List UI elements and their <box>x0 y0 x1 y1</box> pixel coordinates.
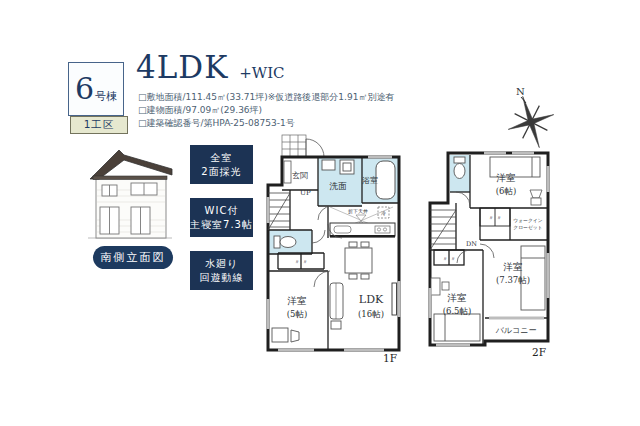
feature-line: 2面採光 <box>201 165 241 179</box>
floor-plan-2f: 〃 〃 〃 〃 ウォークイン クローゼット DN <box>426 148 574 364</box>
room65-name: 洋室 <box>447 292 467 303</box>
feature-box-wic: WIC付 主寝室7.3帖 <box>190 198 253 237</box>
ldk-size: (16帖) <box>358 309 384 319</box>
roof <box>90 150 172 179</box>
bed-room65 <box>434 314 480 341</box>
compass-star <box>500 89 562 150</box>
stairs-up <box>268 193 290 230</box>
sofa <box>330 283 343 329</box>
bathtub <box>376 161 395 199</box>
floor1-label: 1F <box>383 352 397 364</box>
eave-band <box>93 176 167 180</box>
unit-suffix: 号棟 <box>95 89 117 104</box>
spec-land-area: □敷地面積/111.45㎡(33.71坪)※仮道路後退部分1.91㎡別途有 <box>138 91 394 104</box>
balcony-label: バルコニー <box>495 326 537 335</box>
compass-icon: N <box>498 84 562 150</box>
room6-name: 洋室 <box>496 172 516 183</box>
tv-board <box>392 283 397 315</box>
up-label: UP <box>300 189 311 197</box>
layout-suffix: +WIC <box>239 64 284 82</box>
floor-plan-1f: UP 折下天井 冷 <box>264 131 412 365</box>
elevation-caption: 南側立面図 <box>93 246 173 269</box>
spec-list: □敷地面積/111.45㎡(33.71坪)※仮道路後退部分1.91㎡別途有 □建… <box>138 91 394 130</box>
feature-line: 回遊動線 <box>200 271 244 285</box>
compass-north-label: N <box>516 86 525 97</box>
feature-line: WIC付 <box>205 204 239 218</box>
bedroom5-desk <box>272 328 299 342</box>
door-arcs-1f <box>312 206 342 287</box>
unit-badge: 6 号棟 <box>68 62 124 116</box>
genkan-label: 玄関 <box>292 171 308 180</box>
kitchen-counter <box>330 223 395 238</box>
entrance-door-arc <box>306 139 324 157</box>
spec-building-area: □建物面積/97.09㎡(29.36坪) <box>138 104 394 117</box>
room6-size: (6帖) <box>496 186 517 196</box>
desk-room65 <box>431 278 449 295</box>
room5-name: 洋室 <box>287 295 307 306</box>
closet-marks-2f-left: 〃 〃 <box>442 255 456 262</box>
wic-label-1: ウォークイン <box>513 218 542 223</box>
washroom-label: 洗面 <box>329 181 348 191</box>
room737-name: 洋室 <box>503 261 523 272</box>
feature-line: 水廻り <box>205 257 238 271</box>
dropped-ceiling-label: 折下天井 <box>348 208 368 215</box>
stairs-down <box>430 210 456 250</box>
toilet-fixture-1f <box>274 236 296 248</box>
feature-box-lighting: 全室 2面採光 <box>190 145 253 184</box>
unit-number: 6 <box>75 74 94 104</box>
bathroom-label: 浴室 <box>362 176 378 185</box>
dn-label: DN <box>466 240 477 248</box>
toilet-fixture-2f <box>454 157 465 179</box>
section-label: 1工区 <box>70 116 128 134</box>
fridge-label: 冷 <box>381 210 386 216</box>
room65-size: (6.5帖) <box>443 306 472 316</box>
spec-confirmation-number: □建築確認番号/第HPA-25-08753-1号 <box>138 117 394 130</box>
dresser-room6 <box>530 190 542 205</box>
door-arcs-2f <box>456 192 494 263</box>
feature-line: 全室 <box>211 151 233 165</box>
floorplan-sheet: 6 号棟 1工区 4LDK +WIC □敷地面積/111.45㎡(33.71坪)… <box>0 0 640 426</box>
ldk-name: LDK <box>359 293 384 306</box>
dining-set <box>345 242 372 279</box>
room5-size: (5帖) <box>287 309 308 319</box>
south-elevation-drawing <box>84 146 176 243</box>
feature-box-circulation: 水廻り 回遊動線 <box>190 251 253 290</box>
floor2-label: 2F <box>532 346 546 358</box>
closet-marks-2f: 〃 〃 <box>488 214 502 221</box>
feature-line: 主寝室7.3帖 <box>190 218 253 232</box>
wic-label-2: クローゼット <box>513 225 542 230</box>
page-title: 4LDK +WIC <box>136 52 285 83</box>
shoe-cabinet <box>284 161 291 183</box>
room737-size: (7.37帖) <box>496 275 530 285</box>
entrance-porch <box>282 135 306 157</box>
layout-type: 4LDK <box>136 49 228 85</box>
closet-marks-1f: 〃 〃 <box>294 258 308 265</box>
